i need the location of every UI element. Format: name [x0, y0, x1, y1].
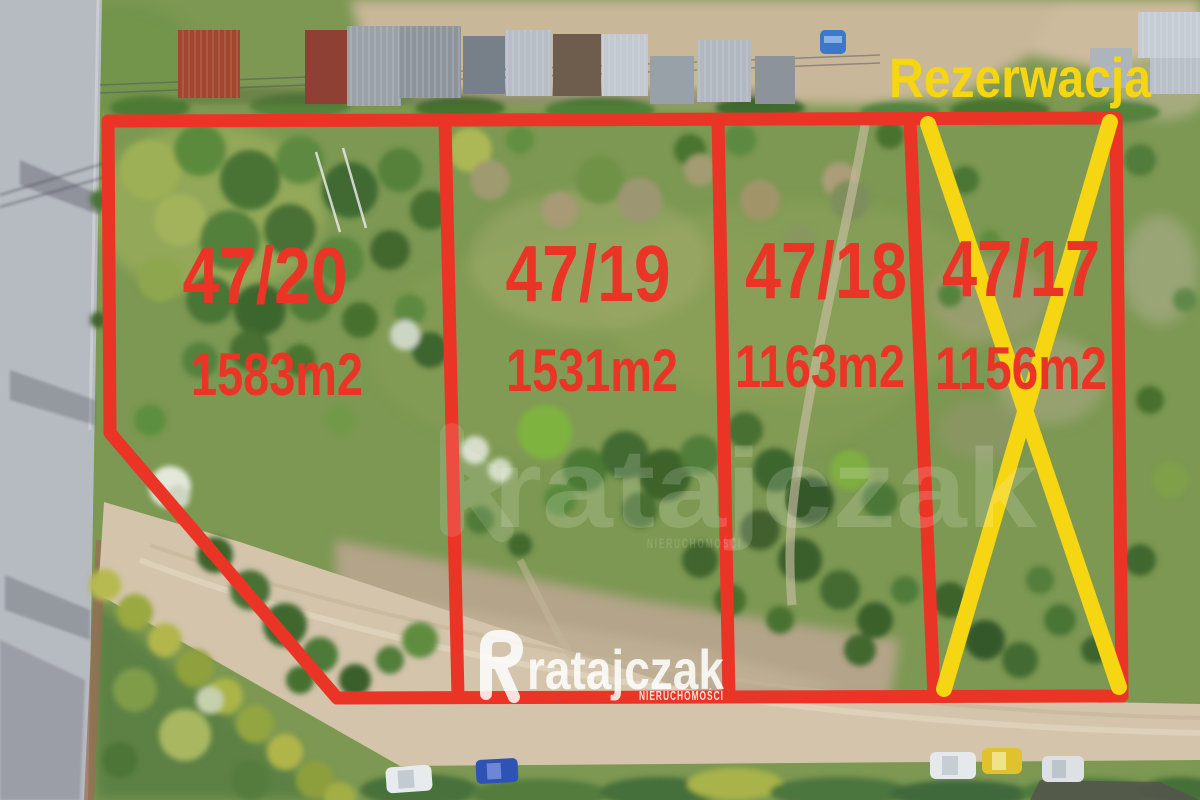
watermark-tagline: NIERUCHOMOŚCI	[647, 534, 742, 551]
car-yellow	[982, 748, 1022, 774]
asphalt-road	[0, 0, 106, 800]
car-blue-top	[820, 30, 846, 54]
building-rusty-roof	[178, 30, 240, 98]
car-white-1	[385, 764, 433, 793]
plot-47-18-region	[718, 119, 934, 697]
plot-47-17-number: 47/17	[942, 224, 1100, 313]
reservation-label: Rezerwacja	[889, 46, 1152, 109]
aerial-photo-canvas: ratajczak NIERUCHOMOŚCI 47/20 1583m2 47/…	[0, 0, 1200, 800]
plot-47-18-area: 1163m2	[735, 333, 905, 400]
car-white-2	[930, 752, 976, 779]
car-blue-bottom	[475, 758, 518, 784]
plot-47-19-number: 47/19	[506, 229, 671, 318]
plot-47-19-area: 1531m2	[506, 337, 678, 404]
plot-47-19-region	[445, 119, 729, 697]
watermark: ratajczak NIERUCHOMOŚCI	[452, 426, 1038, 551]
watermark-text: ratajczak	[493, 426, 1039, 551]
car-white-3	[1042, 756, 1084, 782]
plot-47-17-area: 1156m2	[935, 335, 1107, 402]
plot-47-18-number: 47/18	[745, 226, 907, 315]
plot-47-20-number: 47/20	[183, 231, 348, 320]
plot-47-20-area: 1583m2	[191, 341, 363, 408]
aerial-photo: ratajczak NIERUCHOMOŚCI 47/20 1583m2 47/…	[0, 0, 1200, 800]
agency-logo-tagline: NIERUCHOMOŚCI	[639, 688, 724, 703]
